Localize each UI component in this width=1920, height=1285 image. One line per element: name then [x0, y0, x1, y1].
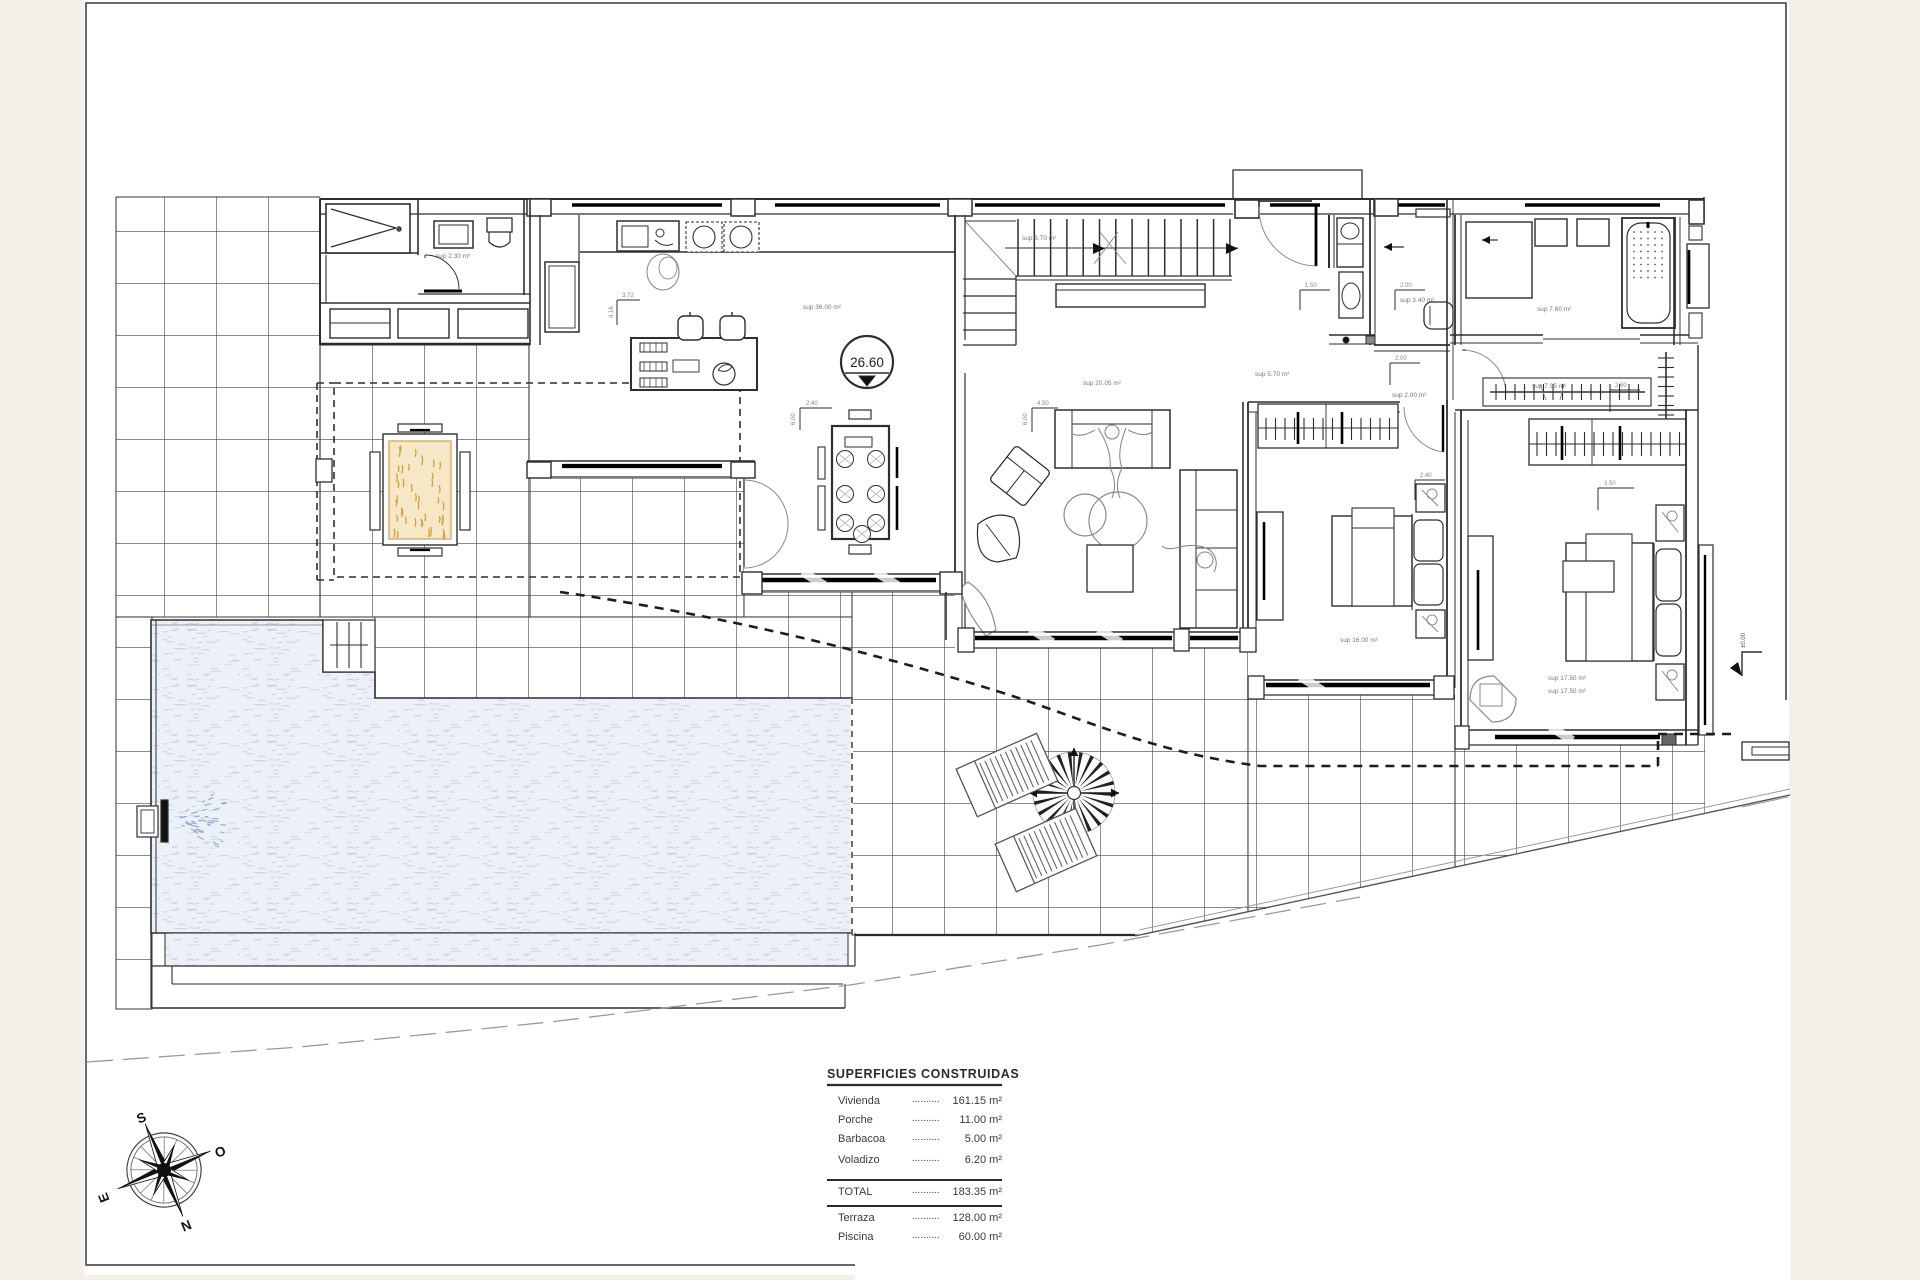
svg-text:sup 6.70 m²: sup 6.70 m²: [1022, 235, 1057, 242]
svg-text:sup 2.30 m²: sup 2.30 m²: [436, 253, 471, 260]
svg-text:sup 17.50 m²: sup 17.50 m²: [1548, 675, 1587, 682]
svg-text:6.00: 6.00: [791, 413, 797, 425]
svg-text:Voladizo: Voladizo: [838, 1154, 880, 1166]
svg-text:2.00: 2.00: [1400, 283, 1412, 289]
svg-text:SUPERFICIES CONSTRUIDAS: SUPERFICIES CONSTRUIDAS: [827, 1067, 1019, 1081]
svg-text:TOTAL: TOTAL: [838, 1186, 872, 1198]
svg-text:sup 5.70 m²: sup 5.70 m²: [1255, 371, 1290, 378]
svg-text:4.16: 4.16: [609, 306, 615, 318]
svg-text:sup 36.00 m²: sup 36.00 m²: [803, 304, 842, 311]
svg-text:..........: ..........: [912, 1185, 940, 1196]
svg-text:2.40: 2.40: [1420, 473, 1432, 479]
svg-text:..........: ..........: [912, 1211, 940, 1222]
svg-text:sup 7.95 m²: sup 7.95 m²: [1532, 383, 1567, 390]
svg-text:6.20 m²: 6.20 m²: [965, 1154, 1003, 1166]
svg-text:Vivienda: Vivienda: [838, 1095, 881, 1107]
svg-text:Terraza: Terraza: [838, 1212, 876, 1224]
svg-text:2.80: 2.80: [1615, 383, 1627, 389]
svg-text:sup 2.00 m²: sup 2.00 m²: [1392, 392, 1427, 399]
svg-text:3.50: 3.50: [1604, 481, 1616, 487]
svg-text:60.00 m²: 60.00 m²: [959, 1231, 1003, 1243]
svg-text:4.50: 4.50: [1037, 401, 1049, 407]
svg-text:..........: ..........: [912, 1094, 940, 1105]
svg-text:..........: ..........: [912, 1153, 940, 1164]
svg-text:Barbacoa: Barbacoa: [838, 1133, 886, 1145]
svg-text:2.40: 2.40: [806, 401, 818, 407]
svg-text:6.00: 6.00: [1023, 413, 1029, 425]
svg-text:183.35 m²: 183.35 m²: [952, 1186, 1002, 1198]
svg-text:Piscina: Piscina: [838, 1231, 874, 1243]
svg-text:128.00 m²: 128.00 m²: [952, 1212, 1002, 1224]
svg-text:..........: ..........: [912, 1230, 940, 1241]
svg-text:..........: ..........: [912, 1113, 940, 1124]
svg-text:±0.00: ±0.00: [1741, 632, 1747, 648]
svg-text:161.15 m²: 161.15 m²: [952, 1095, 1002, 1107]
svg-text:sup 20.05 m²: sup 20.05 m²: [1083, 380, 1122, 387]
svg-text:2.00: 2.00: [1395, 356, 1407, 362]
svg-text:sup 16.00 m²: sup 16.00 m²: [1340, 637, 1379, 644]
svg-text:26.60: 26.60: [850, 355, 884, 370]
svg-text:5.00 m²: 5.00 m²: [965, 1133, 1003, 1145]
svg-text:1.50: 1.50: [1305, 283, 1317, 289]
svg-text:11.00 m²: 11.00 m²: [959, 1114, 1002, 1126]
svg-text:sup 7.60 m²: sup 7.60 m²: [1537, 306, 1572, 313]
svg-text:Porche: Porche: [838, 1114, 873, 1126]
svg-text:sup 17.50 m²: sup 17.50 m²: [1548, 688, 1587, 695]
svg-text:..........: ..........: [912, 1132, 940, 1143]
svg-text:3.72: 3.72: [622, 293, 634, 299]
